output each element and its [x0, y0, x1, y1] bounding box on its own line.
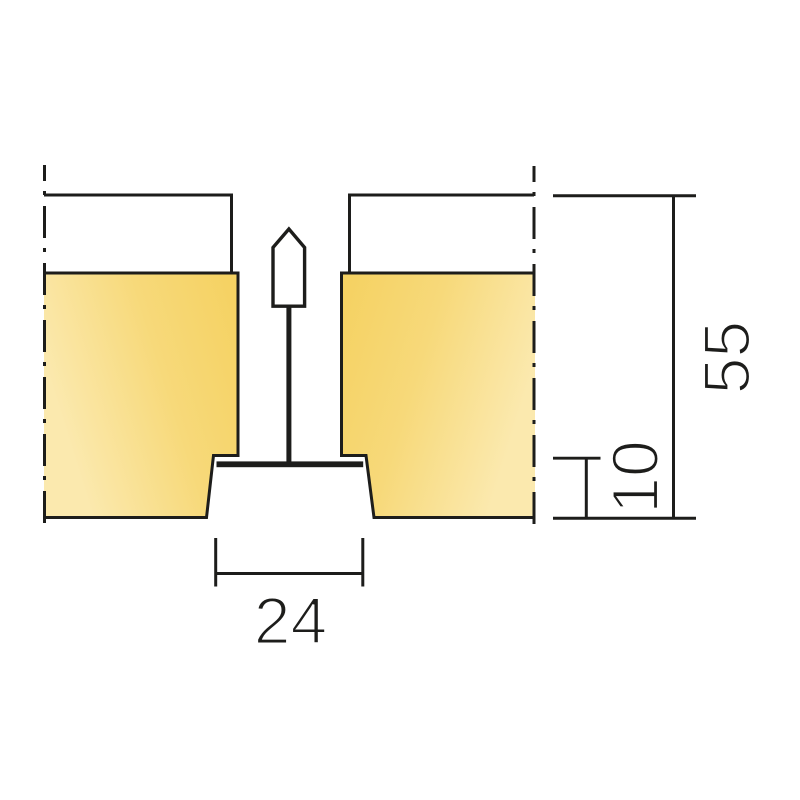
svg-text:55: 55 — [690, 321, 764, 394]
svg-text:10: 10 — [598, 440, 672, 513]
svg-text:24: 24 — [254, 584, 327, 658]
